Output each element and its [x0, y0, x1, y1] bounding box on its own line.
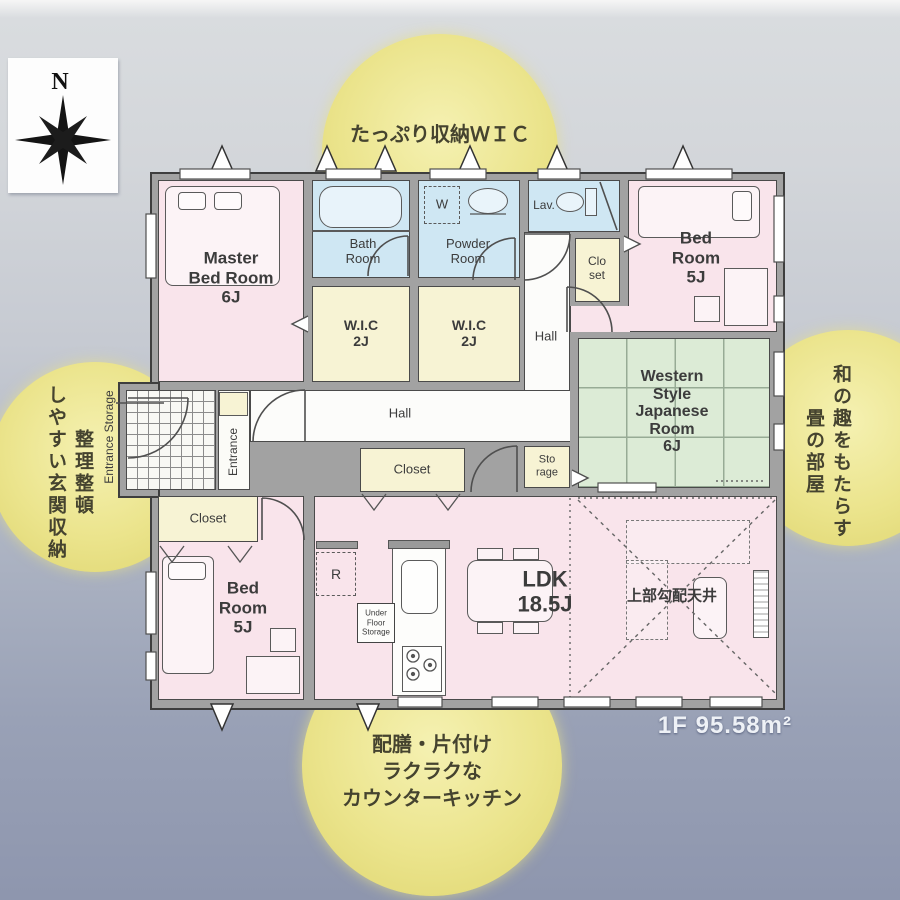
kitchen-hood-bar: [388, 540, 450, 549]
desk: [246, 656, 300, 694]
dining-chair: [513, 622, 539, 634]
vent-window-icon: [672, 146, 694, 171]
room-entrance-storage: [126, 390, 216, 490]
label-entrance: Entrance: [227, 428, 241, 476]
stove: [402, 646, 442, 692]
dining-chair: [477, 548, 503, 560]
callout-right-tatami: 和の趣をもたらす畳の部屋: [800, 362, 854, 542]
label-ldk: LDK18.5J: [517, 567, 572, 618]
kitchen-sink: [401, 560, 438, 614]
label-hall-lower: Hall: [389, 407, 411, 422]
label-closet-north: Closet: [588, 255, 606, 283]
label-powder-room: PowderRoom: [446, 237, 490, 267]
label-sloped-ceiling: 上部勾配天井: [627, 587, 717, 604]
ottoman-table: [693, 577, 727, 639]
label-washer: W: [436, 198, 448, 213]
vent-window-icon: [211, 146, 233, 171]
label-lavatory: Lav.: [533, 199, 555, 213]
label-bathroom: BathRoom: [346, 237, 381, 267]
floor-plan-image: N: [0, 0, 900, 900]
tv-board: [753, 570, 769, 638]
stool: [694, 296, 720, 322]
callout-left-entrance-storage: 整理整頓しやすい玄関収納: [42, 378, 96, 568]
pillow: [732, 191, 752, 221]
dining-chair: [513, 548, 539, 560]
bathtub: [319, 186, 402, 228]
label-fridge: R: [331, 566, 341, 582]
callout-top-wic: たっぷり収納ＷＩＣ: [300, 118, 580, 147]
label-bedroom-sw: BedRoom5J: [219, 579, 267, 638]
sofa-back: [626, 520, 750, 564]
room-bedroom-ne-entry: [570, 306, 630, 332]
label-closet-mid: Closet: [394, 463, 431, 478]
label-closet-sw: Closet: [190, 512, 227, 527]
chair: [270, 628, 296, 652]
toilet-tank: [585, 188, 597, 216]
range-hood-bar: [316, 541, 358, 549]
desk: [724, 268, 768, 326]
dining-chair: [477, 622, 503, 634]
compass-north-label: N: [51, 69, 68, 97]
label-hall-upper: Hall: [535, 330, 557, 345]
label-entrance-storage: Entrance Storage: [103, 390, 117, 483]
shoe-cabinet: [219, 392, 248, 416]
floor-area-label: 1F 95.58m²: [600, 712, 792, 740]
label-under-floor-storage: UnderFloorStorage: [362, 609, 390, 638]
powder-sink: [468, 188, 508, 214]
label-wic-b: W.I.C2J: [452, 317, 486, 349]
label-japanese-room: WesternStyleJapaneseRoom6J: [636, 368, 709, 456]
toilet-bowl: [556, 192, 584, 212]
label-bedroom-ne: BedRoom5J: [672, 229, 720, 288]
callout-bottom-kitchen: 配膳・片付け ラクラクな カウンターキッチン: [292, 732, 572, 813]
pillow: [178, 192, 206, 210]
label-wic-a: W.I.C2J: [344, 317, 378, 349]
pillow: [168, 562, 206, 580]
label-master-bedroom: MasterBed Room6J: [189, 249, 274, 308]
bath-partition-line: [312, 230, 410, 232]
label-storage: Storage: [536, 453, 558, 478]
pillow: [214, 192, 242, 210]
